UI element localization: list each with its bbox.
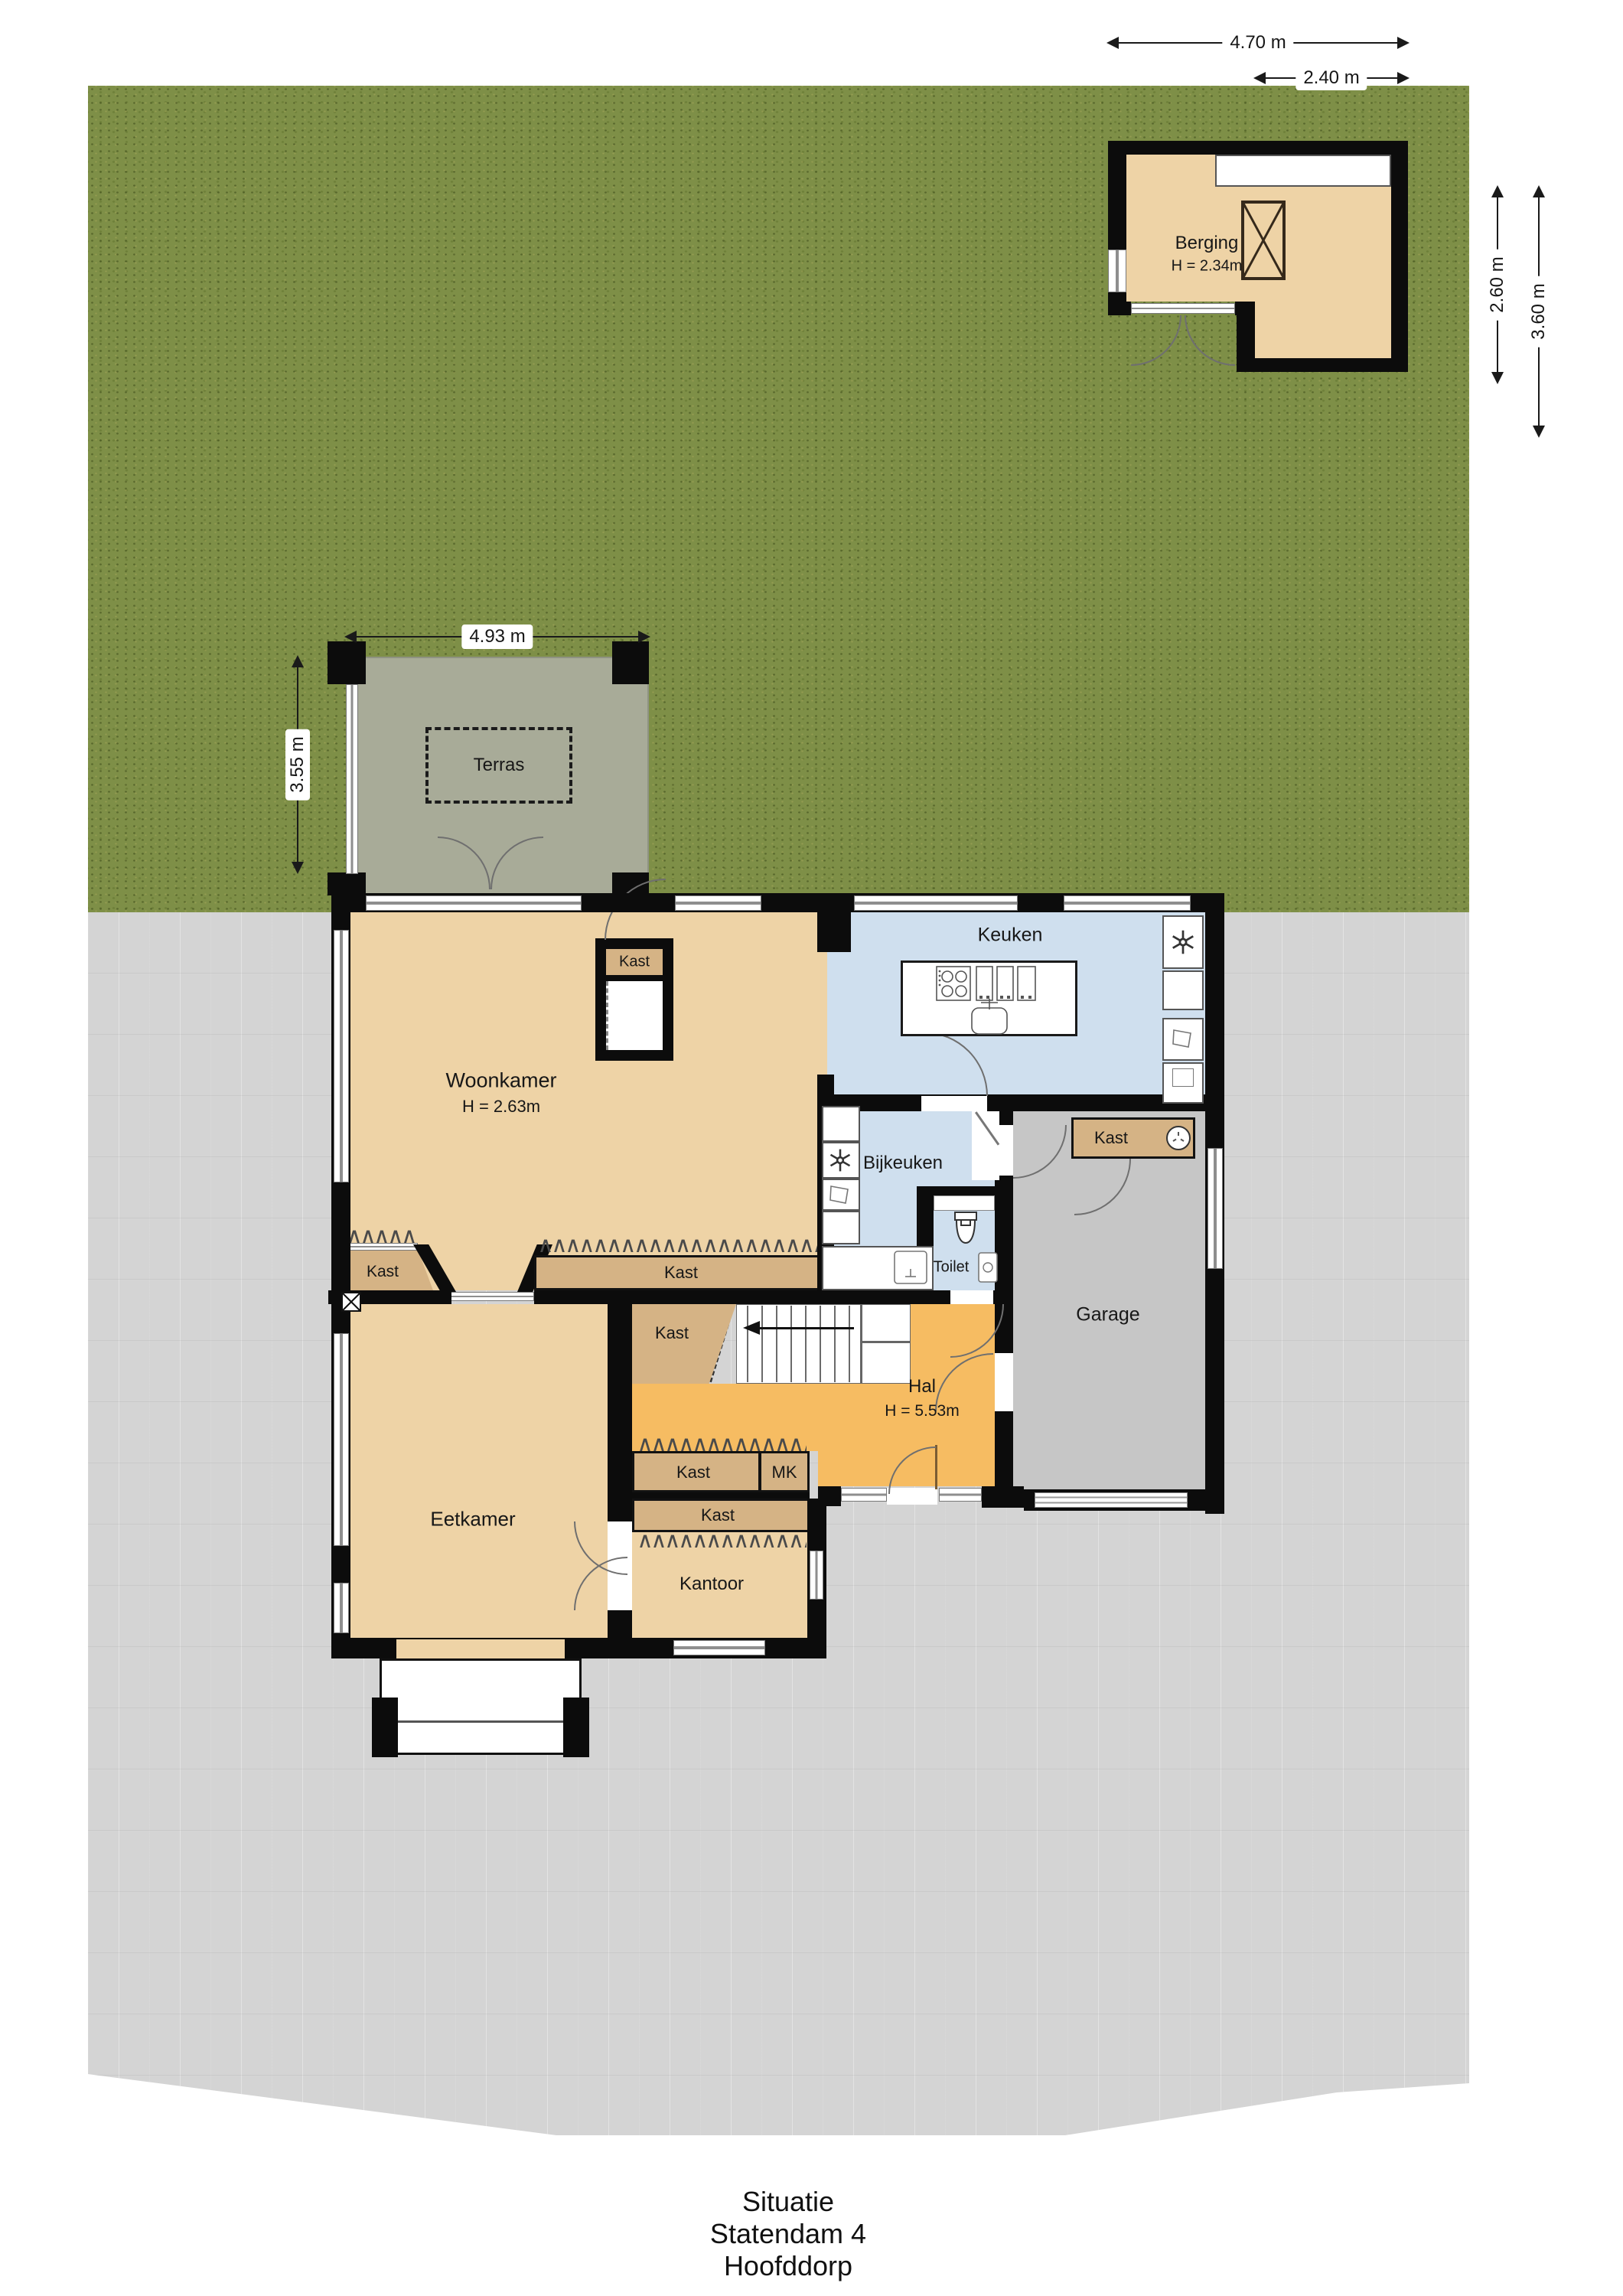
closet-label: MK <box>772 1463 797 1482</box>
entry-wall-block <box>818 1486 841 1506</box>
small-window-icon <box>341 1292 361 1312</box>
window <box>334 1583 349 1633</box>
dimension-berging-height: 2.60 m <box>1497 187 1498 383</box>
room-label: Bijkeuken <box>863 1153 943 1174</box>
bay-passage <box>396 1639 565 1658</box>
window <box>854 895 1018 911</box>
berging-wall <box>1108 141 1408 155</box>
dimension-terras-depth: 3.55 m <box>297 657 298 872</box>
berging-workbench <box>1215 155 1391 187</box>
closet-label: Kast <box>701 1505 735 1525</box>
window <box>810 1551 823 1600</box>
utility-counter <box>822 1211 860 1244</box>
sink-icon <box>892 1249 929 1286</box>
situation-floorplan: Berging H = 2.34m Terras Kast ∧∧∧∧∧∧ Kas… <box>0 0 1623 2296</box>
window <box>1207 1148 1223 1269</box>
row-divider-wall <box>632 1492 810 1499</box>
bay-pillar <box>372 1698 398 1757</box>
terras-pillar <box>612 641 649 684</box>
room-label: Keuken <box>978 925 1043 947</box>
dimension-label: 3.55 m <box>285 729 310 800</box>
stair-direction-line <box>753 1327 854 1329</box>
door-opening <box>950 1290 993 1304</box>
berging-wall <box>1391 141 1408 372</box>
utility-counter <box>822 1106 860 1142</box>
window <box>841 1488 887 1502</box>
folding-door-symbol: ∧∧∧∧∧∧∧∧∧∧∧∧∧∧ <box>637 1437 807 1451</box>
dimension-terras-width: 4.93 m <box>346 636 649 638</box>
eetkamer-floor <box>350 1304 608 1638</box>
room-label: Kantoor <box>680 1574 744 1595</box>
berging-wall <box>1237 358 1408 372</box>
closet-label: Kast <box>655 1323 689 1343</box>
closet-label: Kast <box>1094 1128 1128 1148</box>
toilet-icon <box>950 1211 981 1249</box>
dimension-label: 4.70 m <box>1222 31 1293 55</box>
room-label: Garage <box>1076 1304 1139 1326</box>
window <box>673 1640 765 1655</box>
closet-label: Kast <box>676 1463 710 1482</box>
room-label: Woonkamer <box>445 1069 556 1093</box>
passage <box>972 1111 999 1180</box>
plan-address: Statendam 4 <box>710 2218 866 2250</box>
wall-stub <box>817 912 851 952</box>
plan-title: Situatie <box>742 2186 834 2218</box>
room-ceiling-label: H = 5.53m <box>885 1402 959 1420</box>
basin-icon <box>1171 1027 1194 1050</box>
entry-wall-block <box>982 1486 1024 1508</box>
kitchen-counter <box>1162 970 1204 1010</box>
folding-door-symbol: ∧∧∧∧∧∧ <box>346 1229 416 1243</box>
room-label: Hal <box>908 1376 936 1397</box>
terras-pillar <box>328 641 366 684</box>
closet-rail <box>344 1243 418 1251</box>
stair-arrow-icon <box>736 1321 760 1335</box>
bay-window <box>380 1658 582 1755</box>
closet-bottom-wall <box>534 1290 827 1304</box>
room-label: Eetkamer <box>430 1508 515 1531</box>
woonkamer-floor <box>350 912 827 1290</box>
dimension-label: 2.60 m <box>1485 249 1510 320</box>
folding-door-symbol: ∧∧∧∧∧∧∧∧∧∧∧∧∧∧ <box>637 1534 807 1548</box>
terras-pillar <box>328 872 366 895</box>
appliance-outline <box>1172 1068 1194 1087</box>
terras-label: Terras <box>474 755 525 776</box>
berging-wall <box>1108 302 1131 315</box>
berging-window <box>1108 249 1126 292</box>
window <box>366 895 582 911</box>
bay-pillar <box>563 1698 589 1757</box>
stair-landing-line <box>860 1304 862 1384</box>
door-opening <box>921 1096 987 1111</box>
dimension-berging-width: 4.70 m <box>1108 42 1408 44</box>
closet-label: Kast <box>664 1263 698 1283</box>
window <box>675 895 761 911</box>
berging-door-opening <box>1131 303 1235 314</box>
bay-window-line <box>383 1720 578 1723</box>
crossed-box-icon <box>1241 201 1286 280</box>
basin-icon <box>828 1183 851 1206</box>
sink-icon <box>978 1252 998 1283</box>
folding-door-symbol: ∧∧∧∧∧∧∧∧∧∧∧∧∧∧∧∧∧∧∧∧∧∧∧∧ <box>537 1238 824 1252</box>
door-opening <box>995 1353 1013 1411</box>
passage-threshold <box>450 1292 534 1301</box>
stair-landing-line <box>860 1341 911 1343</box>
terras-glass-wall <box>346 684 358 874</box>
closet-interior <box>606 981 663 1050</box>
window <box>334 1333 349 1546</box>
boiler-fan-icon <box>1171 1130 1186 1146</box>
berging-label: Berging <box>1175 233 1239 254</box>
dimension-label: 2.40 m <box>1295 66 1367 90</box>
berging-ceiling-label: H = 2.34m <box>1172 258 1243 276</box>
dimension-label: 4.93 m <box>461 625 533 649</box>
toilet-shelf <box>934 1195 995 1211</box>
berging-floor-ext <box>1255 302 1391 358</box>
plan-city: Hoofddorp <box>724 2250 852 2282</box>
window <box>334 930 349 1182</box>
dimension-berging-total-height: 3.60 m <box>1538 187 1540 436</box>
window <box>939 1488 982 1502</box>
extractor-fan-icon <box>1170 929 1196 955</box>
kitchen-island-fixtures <box>901 960 1077 1036</box>
window <box>1064 895 1191 911</box>
closet-label: Kast <box>619 954 650 971</box>
closet-label: Kast <box>367 1263 399 1281</box>
stair-treads <box>747 1306 860 1382</box>
room-label: Toilet <box>934 1259 970 1277</box>
dimension-label: 3.60 m <box>1527 276 1551 347</box>
room-ceiling-label: H = 2.63m <box>462 1097 540 1117</box>
garage-door <box>1035 1492 1188 1508</box>
toilet-wall <box>917 1186 1001 1195</box>
extractor-fan-icon <box>828 1148 852 1172</box>
dimension-berging-ext-width: 2.40 m <box>1255 77 1408 79</box>
